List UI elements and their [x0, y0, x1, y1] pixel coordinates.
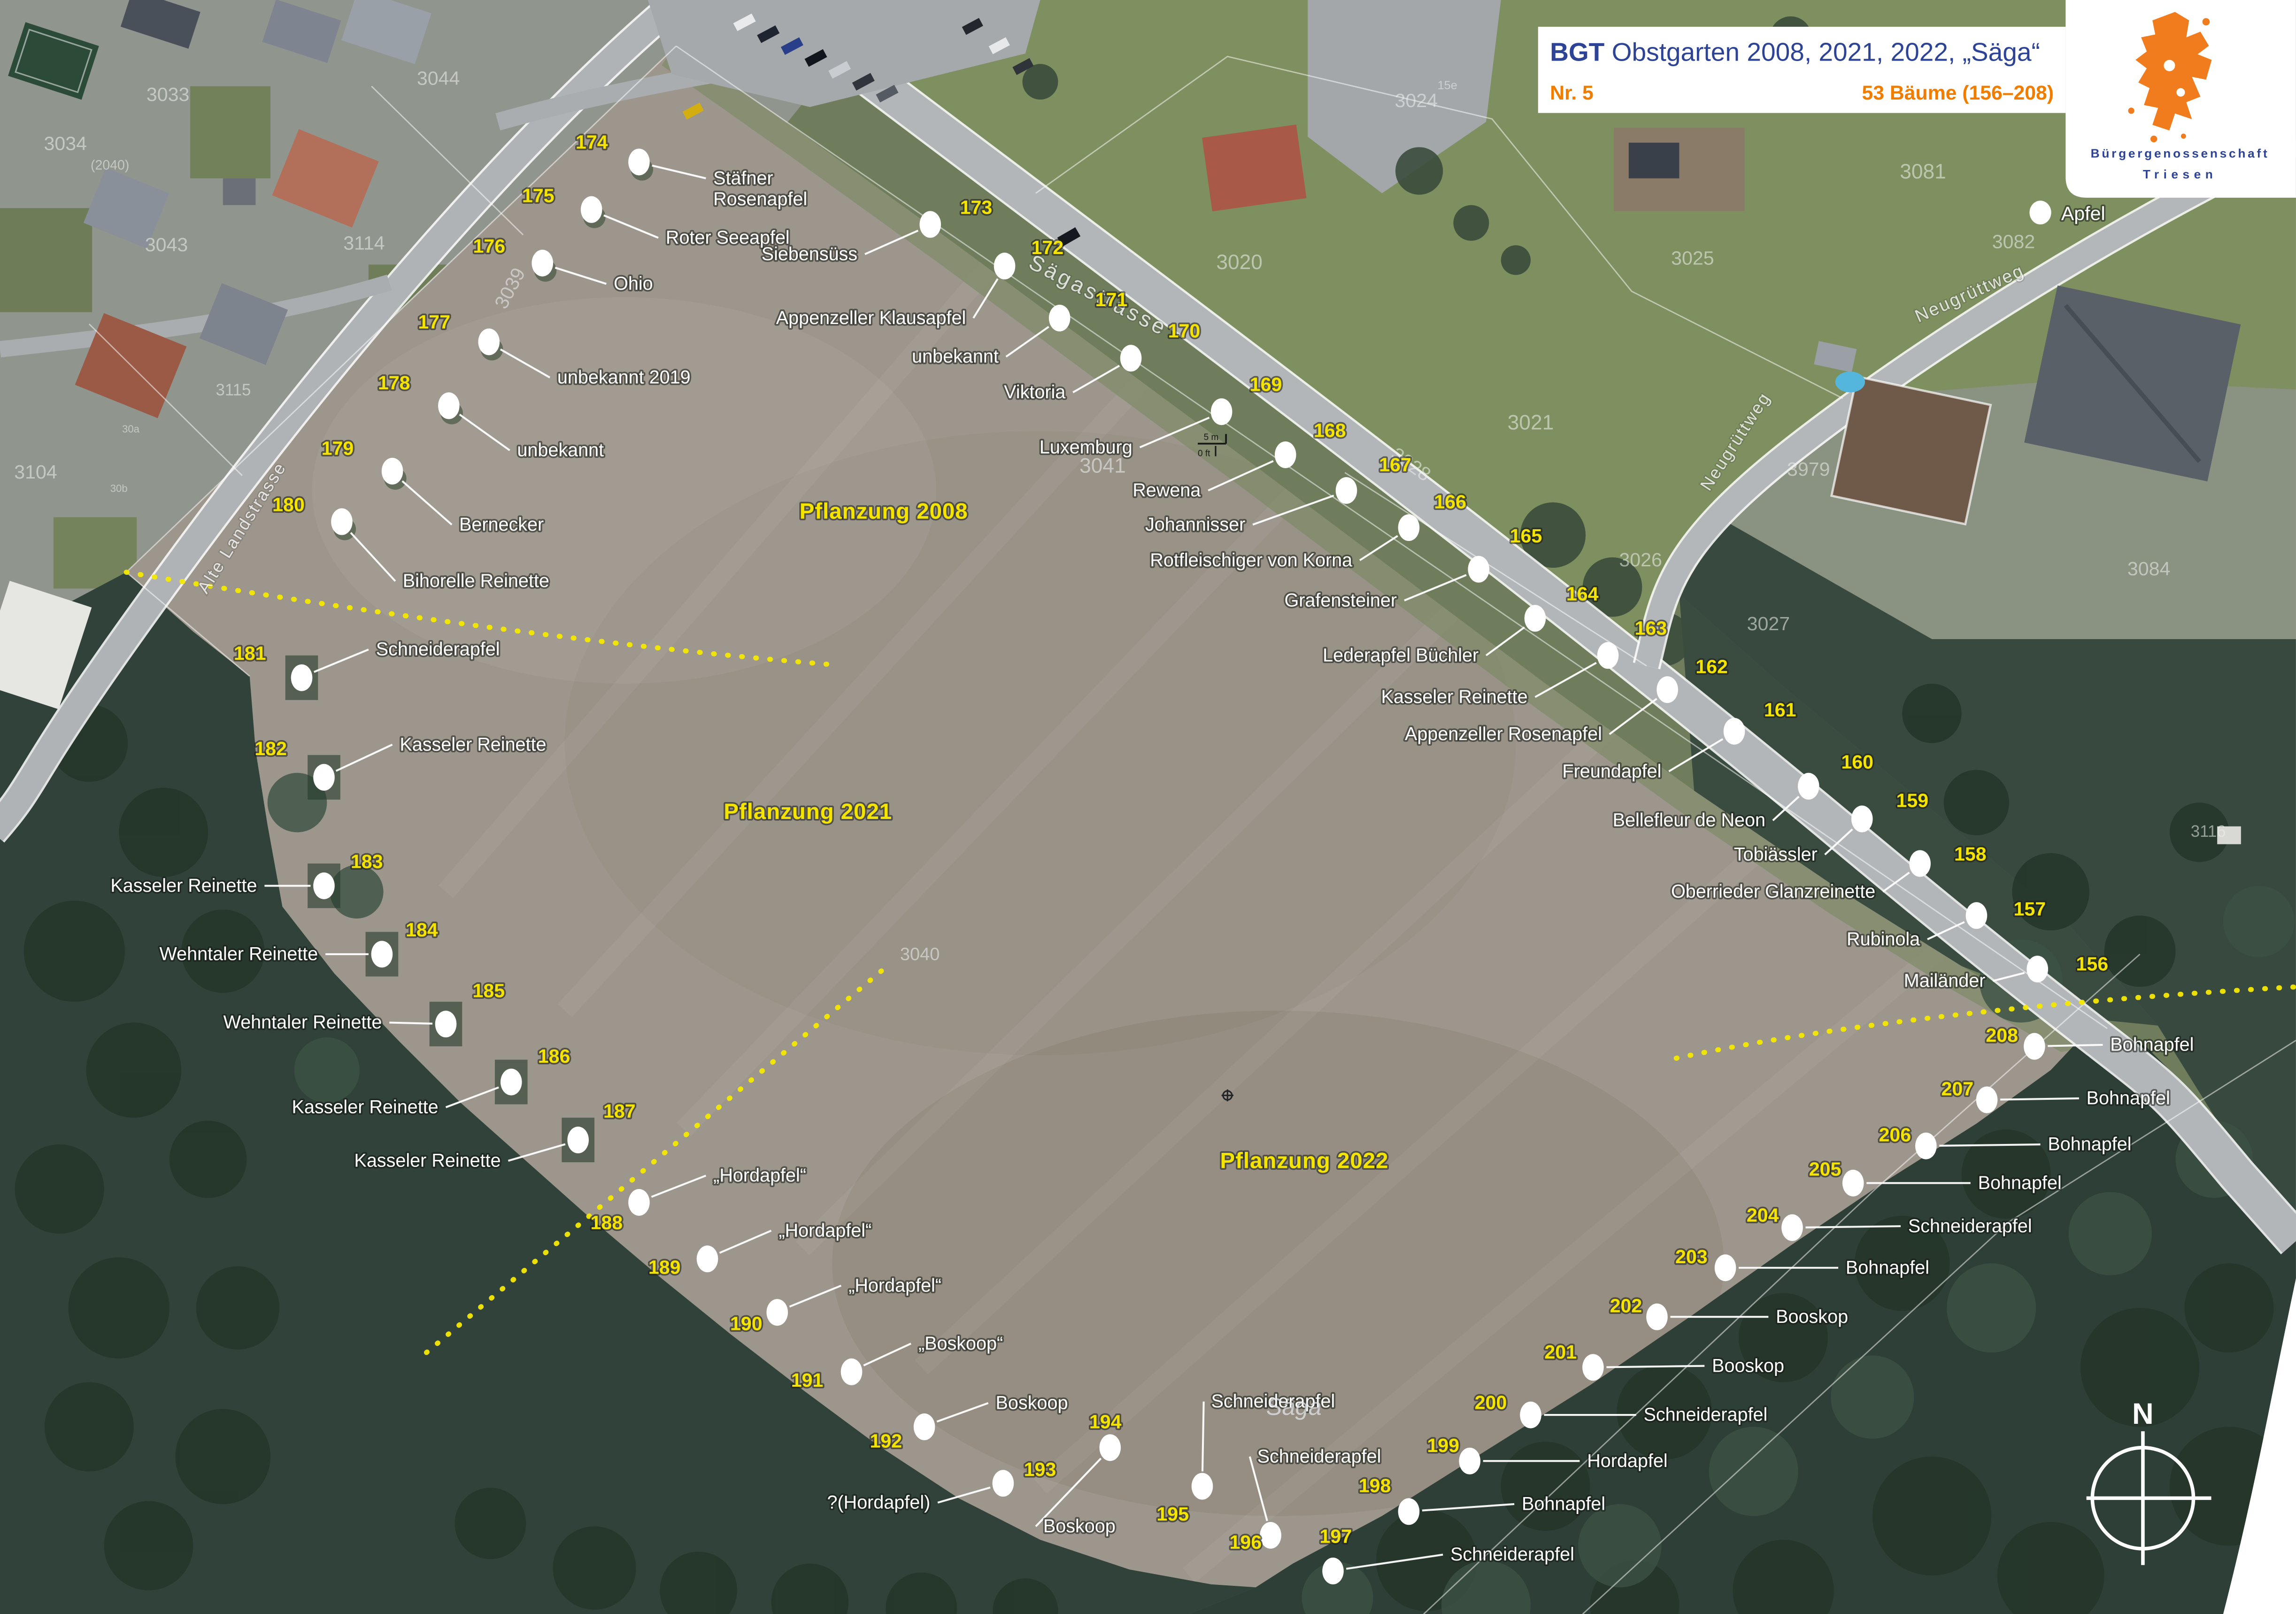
tree-number-204: 204: [1747, 1205, 1779, 1226]
parcel-number-30a: 30a: [122, 423, 140, 435]
tree-leader-line: [2000, 1098, 2079, 1100]
tree-number-172: 172: [1032, 237, 1064, 258]
tree-variety-label-181: Schneiderapfel: [376, 639, 500, 660]
tree-variety-label-204: Schneiderapfel: [1908, 1216, 2032, 1236]
tree-leader-line: [1939, 1144, 2040, 1146]
tree-variety-label-180: Bihorelle Reinette: [403, 571, 549, 591]
tree-marker-177: [478, 328, 500, 355]
tree-number-179: 179: [322, 437, 354, 459]
tree-marker-161: [1724, 718, 1745, 745]
tree-variety-label-207: Bohnapfel: [2087, 1088, 2170, 1109]
tree-number-158: 158: [1954, 843, 1987, 865]
parcel-number-3081: 3081: [1900, 160, 1946, 183]
parcel-number-3026: 3026: [1619, 549, 1662, 571]
header-panel: BGT Obstgarten 2008, 2021, 2022, „Säga“ …: [1538, 27, 2066, 113]
tree-number-201: 201: [1544, 1341, 1577, 1363]
tree-marker-200: [1520, 1402, 1541, 1429]
tree-marker-156: [2026, 956, 2048, 982]
tree-number-168: 168: [1314, 420, 1346, 441]
tree-number-190: 190: [730, 1313, 763, 1335]
tree-number-165: 165: [1510, 525, 1542, 547]
tree-number-193: 193: [1024, 1459, 1056, 1480]
tree-leader-line: [1606, 1366, 1704, 1367]
tree-marker-163: [1597, 642, 1619, 669]
tree-marker-168: [1275, 441, 1296, 468]
tree-variety-label-196: Schneiderapfel: [1257, 1446, 1381, 1467]
tree-marker-176: [532, 250, 553, 277]
tree-variety-label-170: Viktoria: [1004, 382, 1065, 402]
tree-marker-208: [2024, 1033, 2045, 1060]
parcel-number-3033: 3033: [146, 84, 190, 105]
tree-marker-202: [1646, 1304, 1668, 1330]
parcel-number-3027: 3027: [1747, 613, 1790, 634]
tree-marker-193: [993, 1470, 1014, 1497]
orchard-map-svg: 5 m 0 ft 303330443034(2040)3043311430393…: [0, 0, 2296, 1614]
tree-marker-203: [1715, 1254, 1736, 1281]
tree-marker-192: [914, 1413, 935, 1440]
tree-number-176: 176: [473, 235, 505, 257]
tree-number-182: 182: [254, 738, 287, 759]
tree-variety-label-158: Oberrieder Glanzreinette: [1671, 881, 1875, 902]
tree-number-205: 205: [1809, 1158, 1841, 1180]
tree-variety-label-191: „Boskoop“: [918, 1333, 1003, 1354]
tree-number-180: 180: [272, 494, 305, 516]
tree-marker-159: [1851, 805, 1873, 832]
tree-number-156: 156: [2076, 953, 2109, 975]
parcel-number-30b: 30b: [110, 483, 128, 494]
tree-number-157: 157: [2014, 898, 2046, 920]
tree-variety-label-203: Bohnapfel: [1846, 1257, 1929, 1278]
parcel-number-3104: 3104: [14, 461, 57, 483]
tree-variety-label-171: unbekannt: [912, 346, 999, 367]
tree-number-187: 187: [603, 1100, 636, 1122]
parcel-number-3041: 3041: [1079, 454, 1126, 477]
tree-marker-197: [1322, 1558, 1344, 1584]
tree-number-175: 175: [522, 185, 555, 206]
tree-variety-label-202: Booskop: [1776, 1306, 1848, 1327]
tree-number-169: 169: [1250, 373, 1282, 395]
tree-number-170: 170: [1168, 320, 1201, 341]
tree-variety-label-177: unbekannt 2019: [557, 367, 691, 388]
tree-marker-182: [313, 764, 335, 791]
scale-bar-metric-label: 5 m: [1204, 432, 1219, 442]
tree-marker-189: [697, 1245, 718, 1272]
tree-variety-label-168: Rewena: [1133, 480, 1201, 501]
tree-variety-label-176: Ohio: [614, 273, 653, 294]
zone-label-pflanzung-2008: Pflanzung 2008: [800, 499, 968, 524]
tree-variety-label-208: Bohnapfel: [2110, 1035, 2194, 1055]
tree-number-161: 161: [1764, 699, 1796, 721]
tree-count: 53 Bäume (156–208): [1862, 82, 2054, 104]
logo-org-line1: Bürgergenossenschaft: [2091, 146, 2270, 160]
tree-variety-label-186: Kasseler Reinette: [292, 1097, 439, 1118]
tree-variety-label-175: Roter Seeapfel: [666, 227, 790, 248]
tree-leader-line: [1805, 1226, 1901, 1228]
tree-marker-199: [1459, 1448, 1480, 1475]
tree-number-173: 173: [960, 197, 993, 218]
tree-number-171: 171: [1095, 289, 1128, 310]
tree-variety-label-185: Wehntaler Reinette: [223, 1012, 382, 1033]
tree-number-167: 167: [1379, 454, 1411, 475]
tree-marker-162: [1657, 676, 1678, 703]
saega-place-label: Säga: [1266, 1393, 1322, 1420]
tree-variety-label-200: Schneiderapfel: [1643, 1405, 1767, 1425]
tree-variety-label-167: Johannisser: [1145, 514, 1245, 535]
tree-leader-line: [389, 1023, 432, 1024]
scale-bar-imperial-label: 0 ft: [1198, 449, 1210, 459]
tree-number-163: 163: [1635, 617, 1667, 639]
tree-number-191: 191: [791, 1369, 824, 1391]
tree-marker-205: [1842, 1170, 1864, 1197]
tree-variety-label-201: Booskop: [1712, 1355, 1784, 1376]
tree-number-174: 174: [576, 131, 608, 153]
tree-variety-label-164: Lederapfel Büchler: [1323, 645, 1479, 665]
parcel-number-3114: 3114: [343, 232, 385, 254]
parcel-number-3034: 3034: [44, 133, 87, 154]
tree-marker-160: [1798, 773, 1819, 800]
tree-marker-183: [313, 873, 335, 899]
tree-variety-label-187: Kasseler Reinette: [354, 1151, 501, 1171]
logo-panel: Bürgergenossenschaft Triesen: [2065, 0, 2296, 198]
tree-variety-label-182: Kasseler Reinette: [400, 734, 546, 755]
tree-marker-181: [291, 664, 313, 691]
tree-number-160: 160: [1841, 751, 1873, 772]
tree-number-208: 208: [1986, 1025, 2018, 1046]
tree-marker-186: [501, 1069, 522, 1096]
tree-number-188: 188: [591, 1212, 623, 1233]
tree-leader-line: [2048, 1045, 2103, 1046]
parcel-number-3115: 3115: [216, 381, 251, 399]
tree-marker-172: [994, 253, 1016, 279]
tree-variety-label-190: „Hordapfel“: [848, 1275, 941, 1296]
tree-variety-label-162: Appenzeller Rosenapfel: [1405, 724, 1602, 744]
tree-number-181: 181: [234, 642, 266, 664]
aerial-photo-background: 5 m 0 ft 303330443034(2040)3043311430393…: [0, 0, 2296, 1614]
tree-number-185: 185: [472, 980, 505, 1002]
tree-marker-170: [1120, 345, 1142, 371]
parcel-number-3024: 3024: [1395, 90, 1438, 111]
tree-marker-196: [1260, 1522, 1281, 1549]
tree-marker-207: [1976, 1087, 1998, 1113]
tree-marker-158: [1909, 850, 1931, 877]
legend-apfel-marker: [2029, 201, 2051, 224]
tree-number-192: 192: [870, 1430, 902, 1452]
tree-variety-label-198: Bohnapfel: [1522, 1494, 1605, 1514]
tree-number-184: 184: [406, 919, 438, 941]
parcel-number-3021: 3021: [1508, 411, 1554, 434]
tree-variety-label-166: Rotfleischiger von Korna: [1150, 550, 1352, 571]
tree-variety-label-161: Freundapfel: [1562, 761, 1661, 781]
tree-number-194: 194: [1089, 1411, 1122, 1433]
tree-marker-166: [1398, 514, 1420, 541]
parcel-number-3025: 3025: [1671, 247, 1714, 269]
tree-marker-171: [1049, 305, 1071, 332]
tree-marker-204: [1781, 1214, 1803, 1241]
parcel-number-(2040): (2040): [91, 158, 129, 173]
tree-number-178: 178: [378, 372, 410, 394]
tree-marker-167: [1336, 477, 1357, 504]
tree-number-198: 198: [1359, 1475, 1391, 1497]
tree-variety-label-199: Hordapfel: [1587, 1451, 1667, 1471]
tree-variety-label-206: Bohnapfel: [2048, 1134, 2131, 1155]
tree-variety-label-172: Appenzeller Klausapfel: [776, 308, 966, 328]
map-viewport: 5 m 0 ft 303330443034(2040)3043311430393…: [0, 0, 2296, 1614]
tree-number-203: 203: [1675, 1246, 1708, 1267]
tree-marker-174: [628, 149, 650, 176]
tree-number-197: 197: [1320, 1525, 1352, 1547]
parcel-number-3979: 3979: [1787, 458, 1830, 480]
parcel-number-3020: 3020: [1216, 251, 1263, 274]
tree-variety-label-157: Rubinola: [1847, 929, 1920, 950]
tree-number-183: 183: [351, 850, 383, 872]
zone-label-pflanzung-2022: Pflanzung 2022: [1220, 1149, 1388, 1174]
tree-variety-label-179: Bernecker: [459, 514, 544, 535]
parcel-number-3040: 3040: [900, 945, 940, 965]
tree-marker-191: [841, 1359, 863, 1385]
tree-variety-label-194: Boskoop: [1043, 1516, 1116, 1537]
tree-marker-178: [438, 393, 460, 419]
tree-variety-label-183: Kasseler Reinette: [110, 875, 257, 896]
tree-marker-157: [1966, 902, 1988, 929]
tree-variety-label-159: Tobiässler: [1734, 844, 1818, 865]
tree-variety-label-189: „Hordapfel“: [778, 1220, 871, 1241]
map-title-abbrev: BGT: [1550, 38, 1605, 67]
tree-variety-label-184: Wehntaler Reinette: [159, 944, 318, 965]
tree-number-199: 199: [1427, 1435, 1459, 1456]
tree-number-166: 166: [1434, 491, 1466, 512]
tree-marker-187: [567, 1127, 589, 1153]
tree-marker-195: [1192, 1473, 1213, 1500]
tree-variety-label-188: „Hordapfel“: [713, 1165, 806, 1186]
tree-number-177: 177: [418, 311, 450, 332]
tree-marker-180: [331, 508, 353, 535]
tree-variety-label-156: Mailänder: [1904, 971, 1986, 991]
tree-number-159: 159: [1896, 790, 1929, 811]
tree-marker-185: [435, 1011, 457, 1037]
parcel-number-3044: 3044: [417, 67, 460, 89]
map-title-rest: Obstgarten 2008, 2021, 2022, „Säga“: [1604, 38, 2040, 67]
tree-variety-label-193: ?(Hordapfel): [827, 1492, 930, 1513]
tree-marker-184: [371, 941, 393, 967]
map-sheet: 5 m 0 ft 303330443034(2040)3043311430393…: [0, 0, 2296, 1614]
parcel-number-15e: 15e: [1438, 79, 1457, 92]
tree-variety-label-197: Schneiderapfel: [1450, 1544, 1574, 1565]
compass-north-label: N: [2132, 1398, 2154, 1430]
parcel-number-3082: 3082: [1992, 231, 2035, 253]
tree-variety-label-165: Grafensteiner: [1284, 590, 1397, 610]
tree-marker-206: [1915, 1133, 1937, 1159]
tree-marker-179: [382, 458, 403, 485]
tree-number-200: 200: [1475, 1391, 1507, 1413]
tree-marker-173: [920, 211, 941, 238]
tree-marker-188: [628, 1189, 650, 1216]
parcel-number-3084: 3084: [2127, 558, 2170, 579]
logo-org-line2: Triesen: [2143, 167, 2217, 181]
tree-number-164: 164: [1566, 583, 1599, 605]
map-title: BGT Obstgarten 2008, 2021, 2022, „Säga“: [1550, 38, 2040, 67]
tree-marker-198: [1398, 1498, 1420, 1525]
parcel-number-3043: 3043: [145, 234, 188, 255]
zone-label-pflanzung-2021: Pflanzung 2021: [724, 799, 892, 824]
tree-number-202: 202: [1610, 1295, 1642, 1317]
parcel-number-3116: 3116: [2191, 822, 2226, 841]
tree-marker-169: [1211, 398, 1233, 425]
tree-variety-label-169: Luxemburg: [1040, 437, 1133, 457]
tree-number-195: 195: [1156, 1503, 1189, 1525]
tree-variety-label-160: Bellefleur de Neon: [1613, 810, 1765, 831]
tree-number-207: 207: [1941, 1078, 1973, 1100]
tree-variety-label-192: Boskoop: [996, 1392, 1068, 1413]
tree-variety-label-205: Bohnapfel: [1978, 1173, 2062, 1193]
legend: Apfel: [2029, 201, 2105, 224]
tree-number-189: 189: [648, 1256, 681, 1278]
tree-marker-190: [767, 1299, 788, 1326]
tree-marker-194: [1099, 1434, 1121, 1461]
tree-marker-164: [1525, 605, 1546, 632]
tree-marker-175: [581, 196, 602, 223]
tree-number-196: 196: [1229, 1531, 1262, 1553]
tree-marker-165: [1468, 556, 1489, 583]
tree-number-206: 206: [1879, 1124, 1911, 1146]
tree-number-186: 186: [538, 1045, 570, 1067]
tree-number-162: 162: [1695, 656, 1728, 678]
sheet-number: Nr. 5: [1550, 82, 1594, 104]
tree-variety-label-163: Kasseler Reinette: [1381, 687, 1527, 707]
tree-marker-201: [1582, 1354, 1604, 1381]
legend-apfel-label: Apfel: [2061, 202, 2105, 224]
tree-leader-line: [1202, 1402, 1204, 1472]
tree-variety-label-178: unbekannt: [517, 440, 604, 461]
